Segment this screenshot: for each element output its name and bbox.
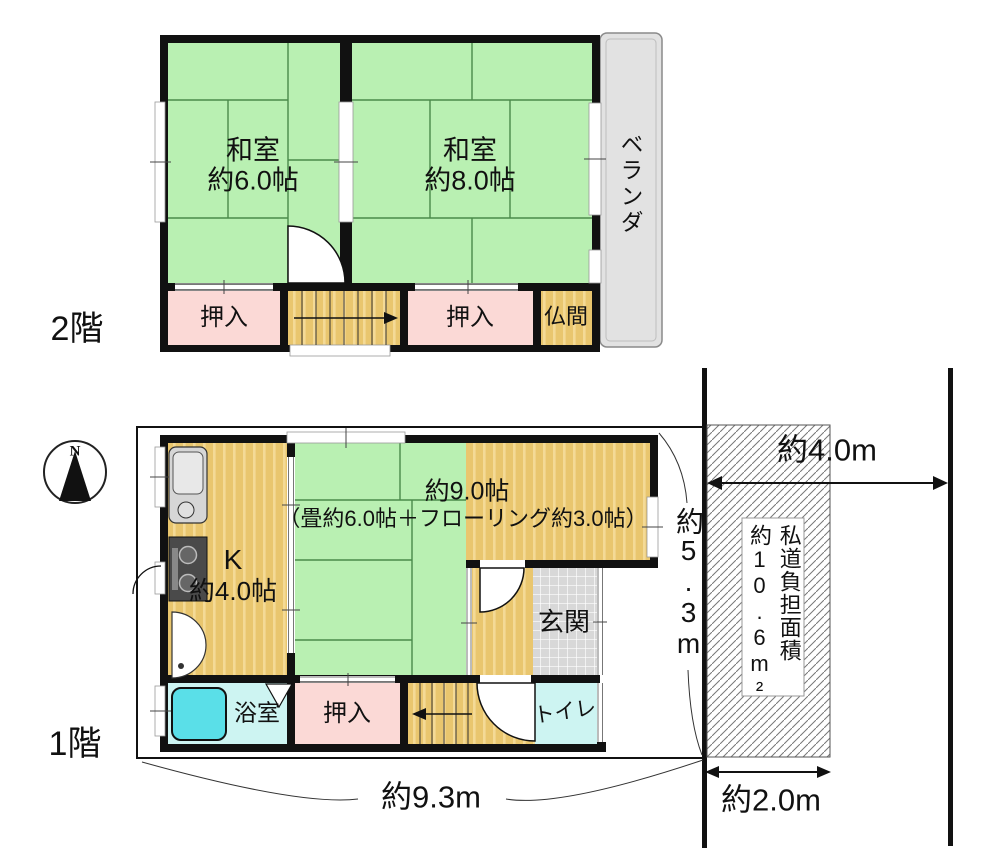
oshiire-1f-label: 押入 xyxy=(323,702,371,726)
main-room-detail: （畳約6.0帖＋フローリング約3.0帖） xyxy=(278,508,647,530)
washitsu8-name: 和室 xyxy=(443,138,497,165)
burden-title: 私道負担面積 xyxy=(777,524,802,662)
kitchen-name: K xyxy=(224,546,243,574)
floor2-label: 2階 xyxy=(51,312,104,346)
oshiire-right-label: 押入 xyxy=(446,306,494,330)
lot-width-dimension: 約9.3m xyxy=(381,782,481,813)
road-span-dimension: 約4.0m xyxy=(777,435,877,466)
dimension-arrow-2m xyxy=(705,766,831,778)
road-width-dimension: 約2.0m xyxy=(721,785,821,816)
lot-depth-dimension: 約5.3m xyxy=(668,507,708,659)
stair-landing-notch xyxy=(290,345,390,356)
genkan-label: 玄関 xyxy=(538,609,590,635)
compass-north-label: N xyxy=(70,445,81,460)
oshiire-left-label: 押入 xyxy=(200,306,248,330)
washitsu8-size: 約8.0帖 xyxy=(424,168,516,195)
kitchen-size: 約4.0帖 xyxy=(189,578,277,604)
floorplan-drawing xyxy=(0,0,1000,853)
burden-label: 私道負担面積約10.6m² xyxy=(744,524,803,703)
burden-area: 約10.6m² xyxy=(747,524,772,703)
washitsu6-name: 和室 xyxy=(226,138,280,165)
veranda-label: ベランダ xyxy=(613,132,647,236)
main-room-size: 約9.0帖 xyxy=(425,480,510,505)
butsuma-label: 仏間 xyxy=(544,306,588,328)
floorplan-canvas: 2階 和室 約6.0帖 和室 約8.0帖 押入 押入 仏間 ベランダ 1階 K … xyxy=(0,0,1000,853)
bath-label: 浴室 xyxy=(234,702,280,725)
bathtub-icon xyxy=(172,688,226,740)
road-line-far xyxy=(948,368,953,846)
kitchen-sink-icon xyxy=(169,447,207,523)
washitsu6-size: 約6.0帖 xyxy=(207,168,299,195)
floor1-label: 1階 xyxy=(49,727,102,761)
